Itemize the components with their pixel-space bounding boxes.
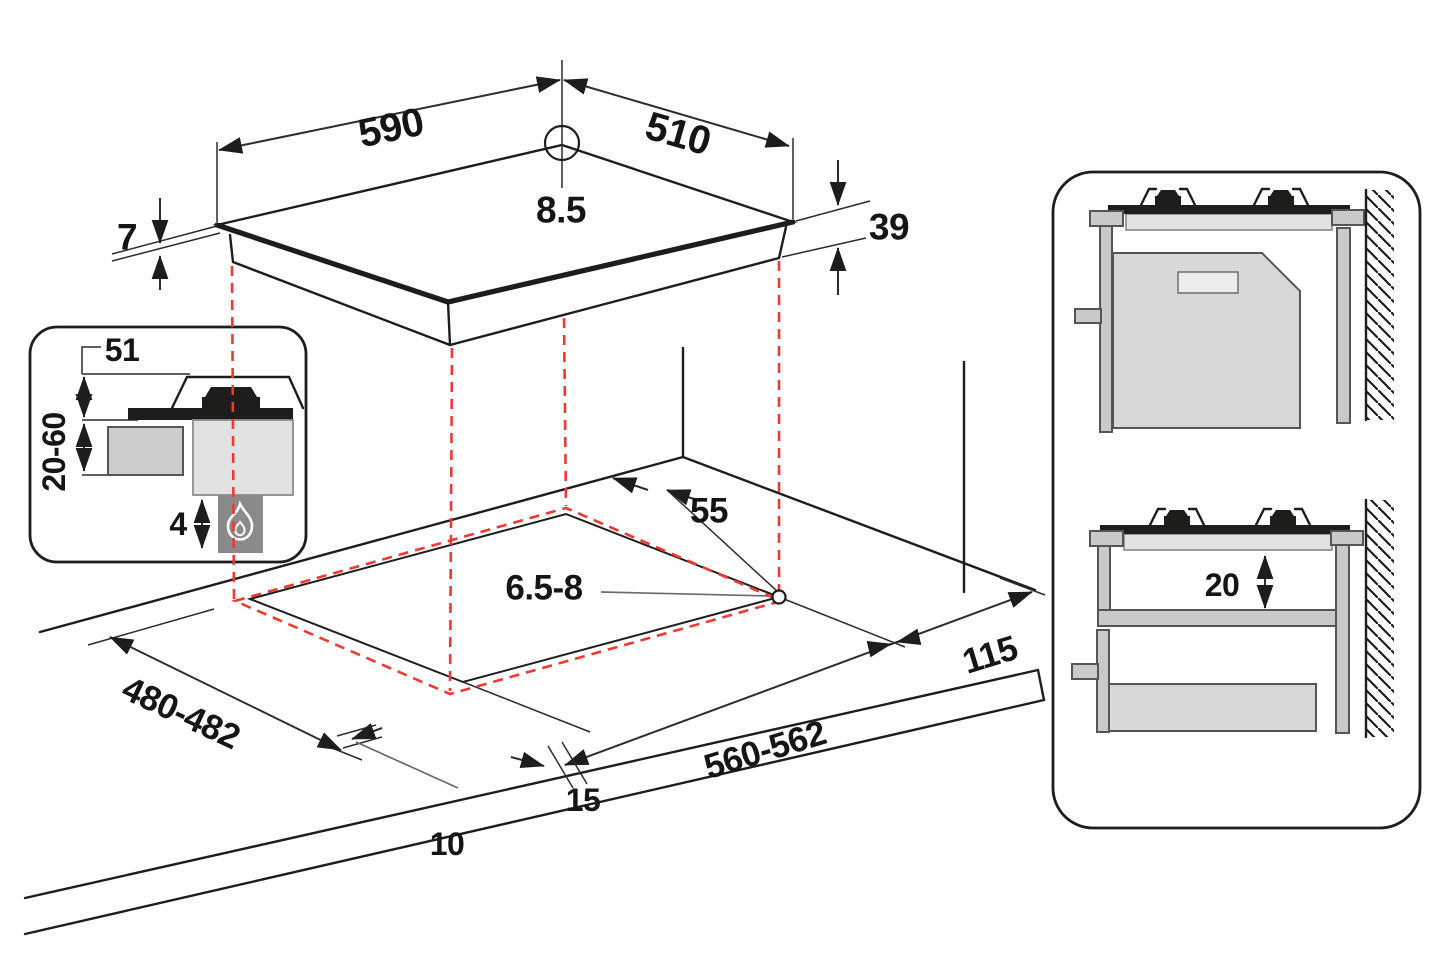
cabinet-left-panel [1100,226,1112,432]
hob-top-view [112,145,793,345]
hob-depth-label: 510 [641,104,716,164]
glass-section [128,408,293,420]
shelf-support-tab [1072,664,1098,679]
hob-casing-section [193,420,293,495]
projection-front-vertical [450,348,452,691]
burner-detail-inset: 51 20-60 4 [30,327,306,562]
drawer [1109,684,1316,731]
hob-glass-surface [217,145,793,302]
glass-thickness-label: 7 [117,217,137,258]
projection-outline [235,261,781,694]
top-hole-label: 8.5 [536,190,586,231]
cabinet-left-panel-lower [1097,630,1109,732]
shelf-support-tab [1075,309,1101,323]
projection-back-vertical [564,318,566,506]
cabinet-section [108,427,183,475]
grate-height-label: 51 [105,332,140,368]
fixing-clamp-right [1331,531,1363,545]
front-offset-label: 10 [430,826,465,862]
body-height-label: 39 [869,207,909,248]
cabinet-right-panel [1336,534,1349,733]
hob-overhang-label: 15 [566,782,601,818]
cutout-width-label: 560-562 [700,713,831,787]
burner-body [202,397,260,408]
hob-glass-side [1108,205,1350,214]
hob-body-right-edge [450,258,779,345]
separator-shelf [1098,610,1338,626]
side-view-above-oven [1075,189,1394,432]
side-view-above-drawer: 20 [1072,500,1394,737]
gas-connection-hole [773,591,786,604]
installation-diagram-page: 480-482 560-562 115 15 10 55 6.5-8 [0,0,1445,963]
hob-width-label: 590 [355,100,428,157]
oven-vent [1178,272,1238,293]
wall-hatching [1366,190,1394,420]
hob-dimensions: 590 510 8.5 7 39 [117,60,909,295]
flame-gap-label: 4 [169,506,187,542]
hob-body-side [1124,534,1332,550]
wall-clearance-label: 115 [958,628,1022,681]
worktop-back-right-edge [683,457,1035,590]
worktop-right-end [1038,670,1044,700]
wall-hatching [1366,500,1394,737]
bottom-hole-label: 6.5-8 [505,569,582,608]
installation-side-views: 20 [1053,172,1420,828]
fixing-clamp-left [1090,211,1123,226]
cabinet-right-panel [1337,228,1350,423]
clearance-below-label: 20-60 [36,412,72,491]
cutout-depth-label: 480-482 [116,669,246,757]
back-clearance-label: 55 [690,492,728,531]
hob-body-side [1126,214,1332,230]
fixing-clamp-left [1090,531,1123,546]
burner-cap [205,387,257,397]
installation-diagram: 480-482 560-562 115 15 10 55 6.5-8 [0,0,1445,963]
hob-glass-side [1100,525,1350,534]
fixing-clamp-right [1332,210,1364,225]
worktop-bottom-edge [25,700,1044,934]
shelf-clearance-label: 20 [1205,567,1240,603]
